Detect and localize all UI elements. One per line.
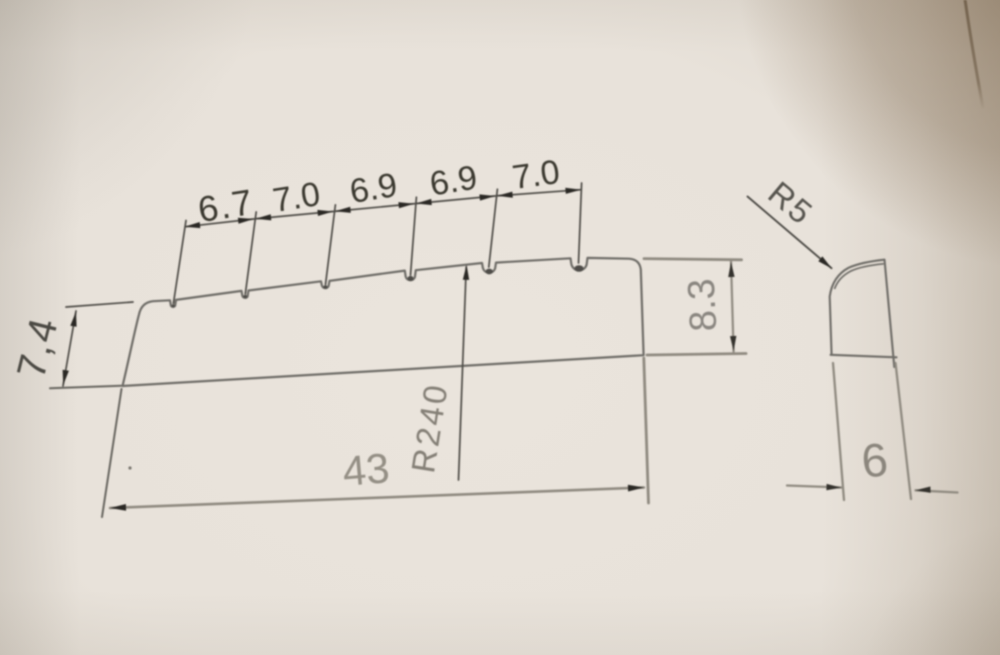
- svg-text:7.0: 7.0: [510, 153, 562, 197]
- svg-text:6.9: 6.9: [427, 159, 480, 204]
- svg-text:6.9: 6.9: [347, 166, 400, 211]
- svg-text:6.7: 6.7: [195, 181, 257, 230]
- svg-text:8.3: 8.3: [681, 278, 726, 333]
- svg-text:43: 43: [341, 444, 392, 495]
- svg-text:7,4: 7,4: [9, 312, 67, 382]
- svg-text:6: 6: [859, 432, 891, 487]
- svg-text:R240: R240: [404, 380, 455, 476]
- svg-text:R5: R5: [761, 174, 820, 232]
- svg-text:7.0: 7.0: [270, 175, 323, 220]
